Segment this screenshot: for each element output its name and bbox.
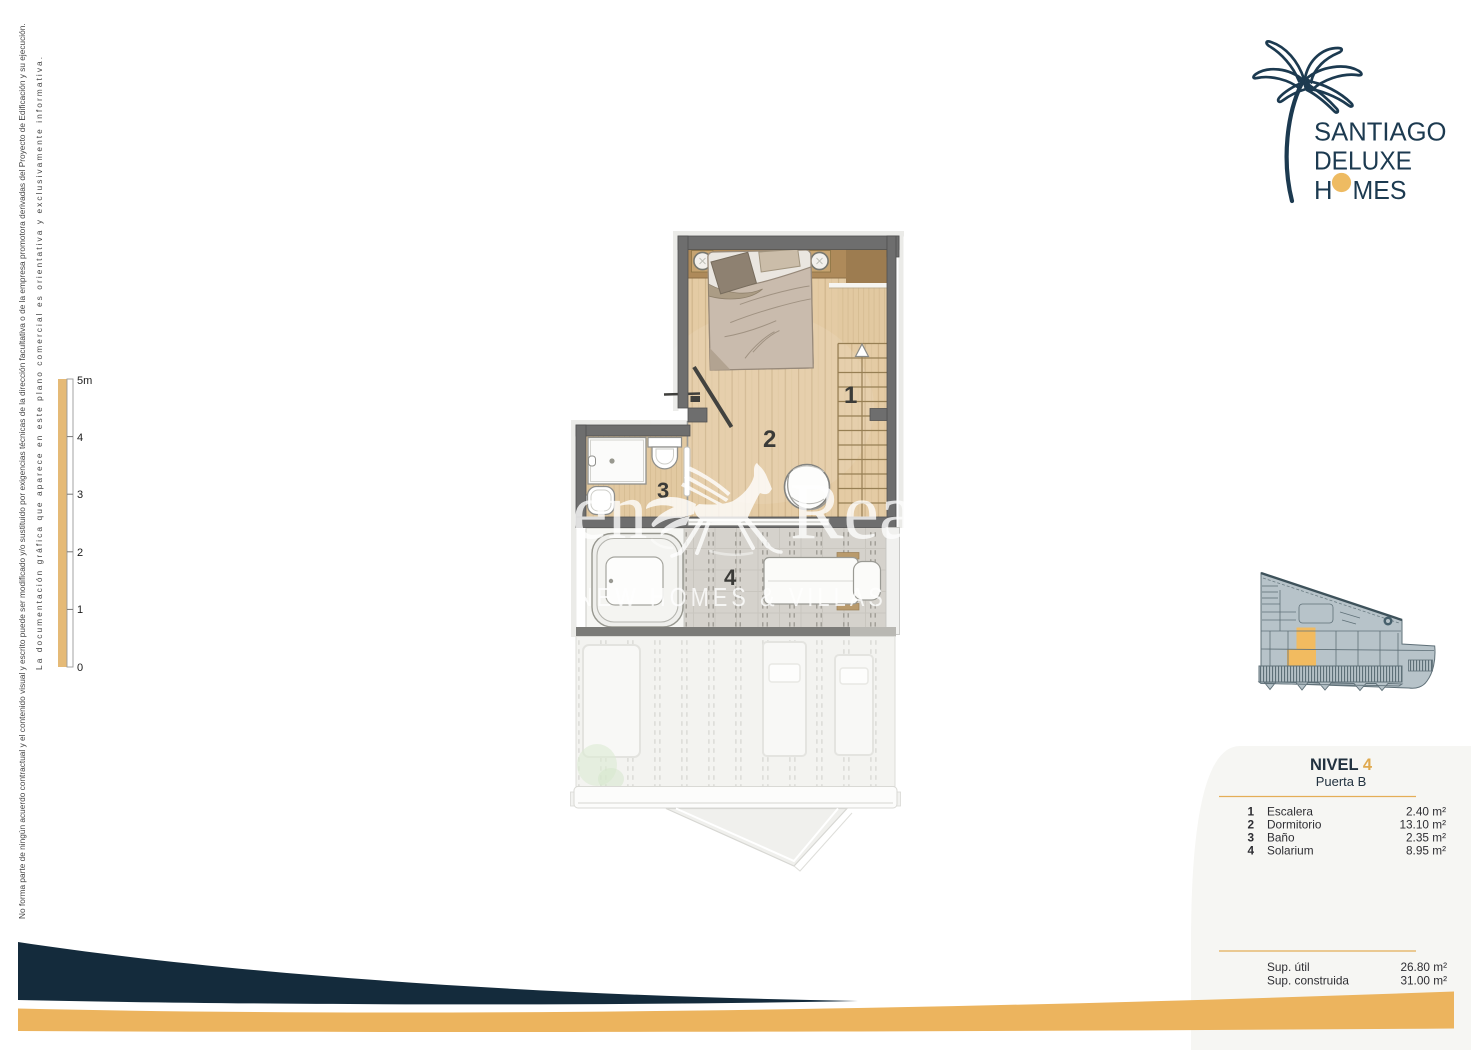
svg-text:1: 1: [1247, 805, 1254, 819]
svg-text:1: 1: [844, 382, 857, 409]
svg-text:en: en: [572, 468, 648, 556]
svg-text:NEW HOMES & VILLAS: NEW HOMES & VILLAS: [577, 582, 887, 612]
svg-text:31.00 m²: 31.00 m²: [1400, 974, 1447, 988]
svg-text:2: 2: [1247, 818, 1254, 832]
svg-text:Solarium: Solarium: [1267, 844, 1314, 858]
svg-text:Realty: Realty: [790, 468, 999, 556]
svg-text:13.10 m²: 13.10 m²: [1399, 818, 1446, 832]
svg-text:NIVEL 4: NIVEL 4: [1310, 756, 1373, 774]
svg-text:3: 3: [1247, 831, 1254, 845]
svg-text:DELUXE: DELUXE: [1314, 146, 1412, 176]
svg-text:Dormitorio: Dormitorio: [1267, 818, 1322, 832]
svg-text:4: 4: [77, 432, 83, 444]
svg-text:H: H: [1314, 175, 1333, 205]
svg-text:Puerta B: Puerta B: [1316, 774, 1367, 789]
svg-text:2.40 m²: 2.40 m²: [1406, 805, 1446, 819]
svg-text:Baño: Baño: [1267, 831, 1295, 845]
svg-text:4: 4: [1247, 844, 1254, 858]
svg-text:2: 2: [77, 547, 83, 559]
svg-text:2: 2: [763, 426, 776, 453]
svg-text:2.35 m²: 2.35 m²: [1406, 831, 1446, 845]
svg-text:Sup. construida: Sup. construida: [1267, 974, 1349, 988]
svg-text:26.80 m²: 26.80 m²: [1400, 960, 1447, 974]
svg-text:No forma parte de ningún acuer: No forma parte de ningún acuerdo contrac…: [17, 23, 27, 919]
svg-text:3: 3: [77, 489, 83, 501]
svg-text:Sup. útil: Sup. útil: [1267, 960, 1310, 974]
svg-text:La documentación gráfica que a: La documentación gráfica que aparece en …: [34, 55, 44, 670]
svg-text:Escalera: Escalera: [1267, 805, 1313, 819]
svg-text:SANTIAGO: SANTIAGO: [1314, 117, 1447, 147]
svg-text:8.95 m²: 8.95 m²: [1406, 844, 1446, 858]
svg-text:0: 0: [77, 662, 83, 674]
svg-text:MES: MES: [1353, 175, 1407, 205]
svg-text:5m: 5m: [77, 375, 92, 387]
svg-text:1: 1: [77, 604, 83, 616]
